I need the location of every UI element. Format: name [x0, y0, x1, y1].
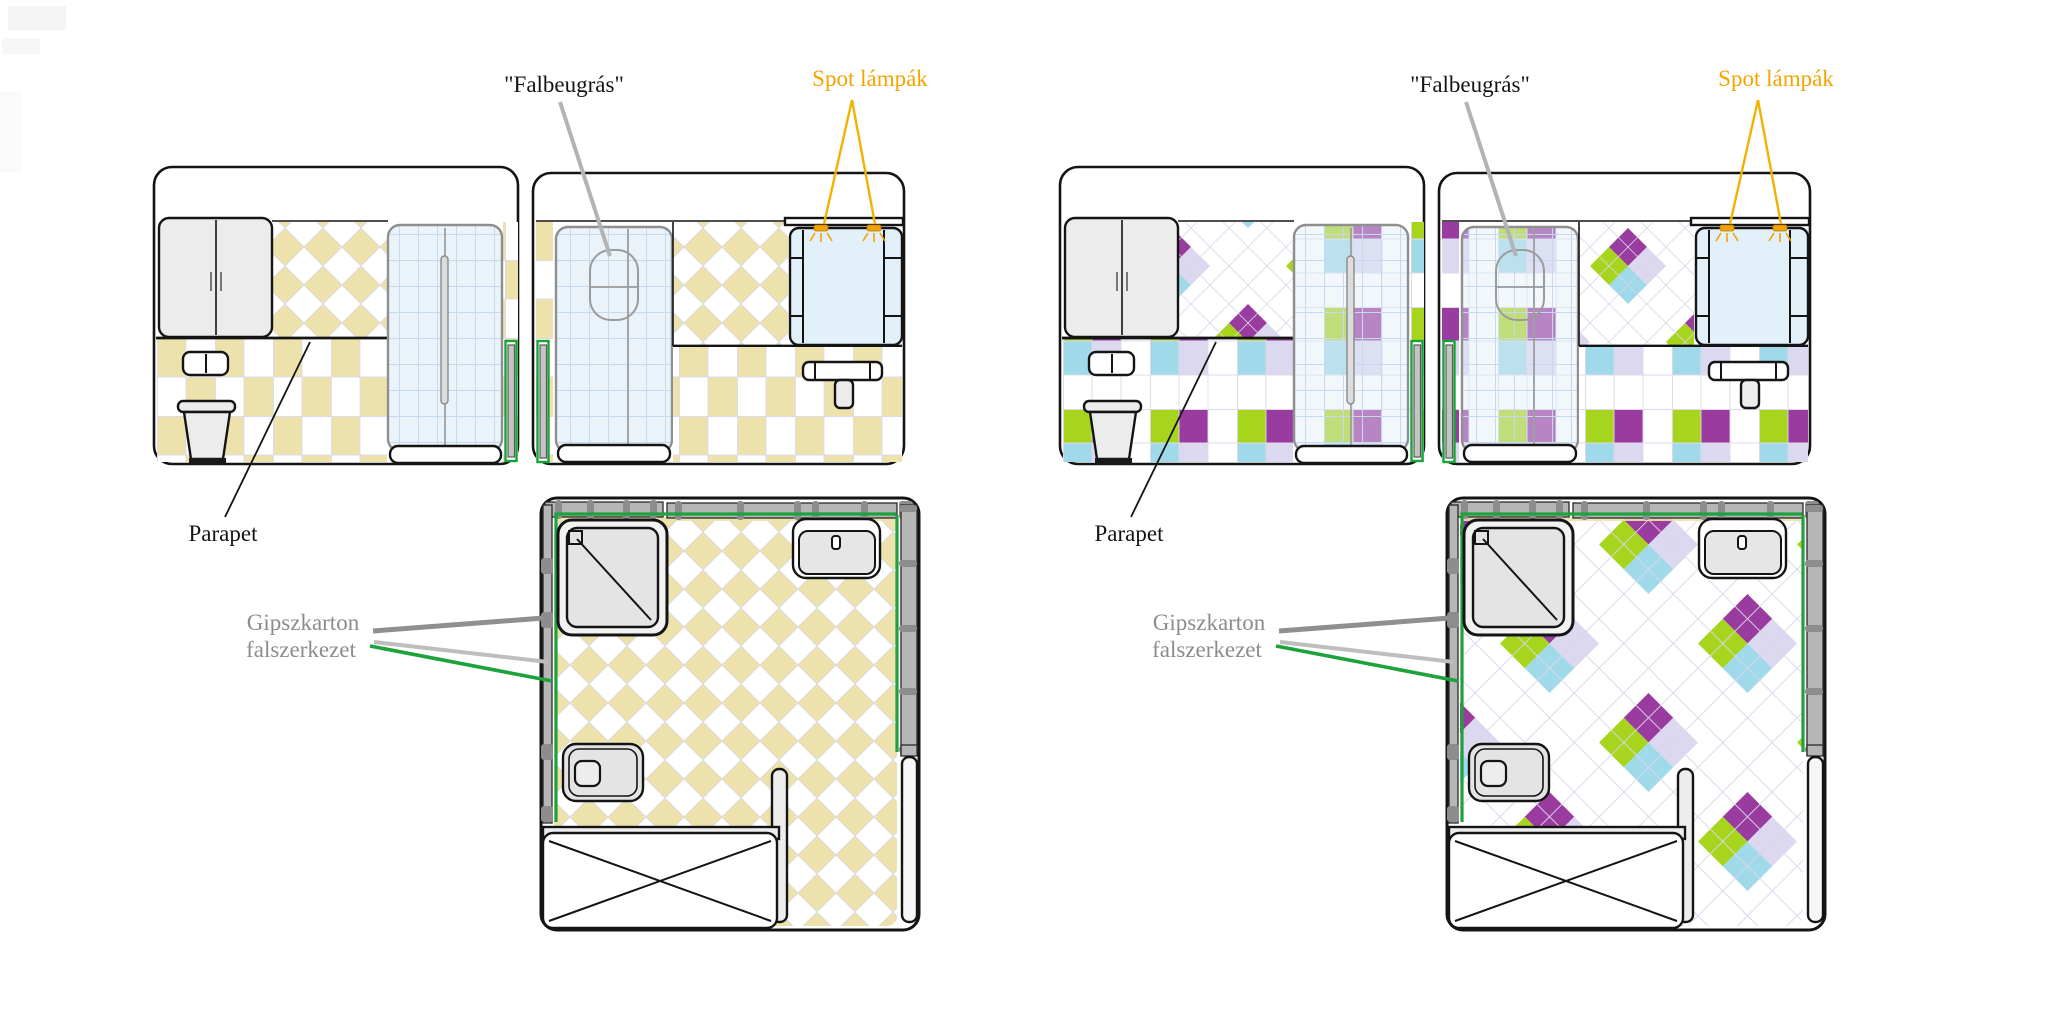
glass-door-edge-2 — [538, 341, 549, 462]
elevation-wall-1 — [1060, 167, 1424, 465]
shower-stall-2 — [1462, 227, 1578, 462]
glass-door-edge-1 — [506, 341, 517, 461]
upper-wall-tiles — [272, 222, 387, 339]
glass-door-edge-2 — [1444, 341, 1455, 462]
beige-scheme-group: "Falbeugrás" Spot lámpák Parapet Gipszka… — [154, 66, 928, 930]
toilet-paper-holder — [1089, 352, 1134, 375]
scan-artifacts — [0, 6, 66, 172]
tile-lattice-overlay — [1178, 222, 1293, 339]
faucet — [1738, 536, 1746, 549]
label-gipszkarton-2: falszerkezet — [1152, 637, 1262, 662]
shower-tray — [390, 446, 501, 463]
label-gipszkarton-1: Gipszkarton — [247, 610, 360, 635]
drywall-left — [541, 505, 553, 823]
elevation-wall-2 — [533, 173, 904, 464]
shower-tray — [1464, 445, 1576, 462]
drywall-right — [1805, 505, 1823, 755]
toilet-paper-holder — [183, 352, 228, 375]
bathroom-diagram: "Falbeugrás" Spot lámpák Parapet Gipszka… — [0, 0, 2048, 1024]
bathtub-plan — [1449, 833, 1683, 928]
mirror-shelf — [1691, 218, 1809, 225]
shower-door-handle — [441, 256, 448, 404]
drywall-top — [1451, 500, 1819, 520]
drywall-right — [899, 505, 917, 755]
color-scheme-group: "Falbeugrás" Spot lámpák Parapet Gipszka… — [1060, 66, 1834, 930]
label-spot-lampak: Spot lámpák — [1718, 66, 1834, 91]
wall-cabinet — [1065, 218, 1178, 337]
diagram-canvas: "Falbeugrás" Spot lámpák Parapet Gipszka… — [0, 0, 2048, 1024]
shower-plan — [558, 520, 667, 635]
bathtub-plan — [543, 833, 777, 928]
label-parapet: Parapet — [1095, 521, 1165, 546]
label-falbeugras: "Falbeugrás" — [1410, 72, 1530, 97]
shower-plan — [1464, 520, 1573, 635]
label-spot-lampak: Spot lámpák — [812, 66, 928, 91]
label-parapet: Parapet — [189, 521, 259, 546]
door-leaf — [1807, 745, 1823, 922]
shower-door-handle — [1347, 256, 1354, 404]
shower-stall-1 — [388, 225, 502, 463]
leader-gipszkarton-a — [1279, 618, 1450, 631]
door-leaf — [901, 745, 917, 922]
glass-door-edge-1 — [1412, 341, 1423, 461]
mirror-shelf — [785, 218, 903, 225]
drywall-left — [1447, 505, 1459, 823]
drywall-top — [545, 500, 913, 520]
elevation-wall-2 — [1439, 173, 1810, 464]
upper-wall-tiles — [673, 222, 788, 346]
label-gipszkarton-1: Gipszkarton — [1153, 610, 1266, 635]
elevation-wall-1 — [154, 167, 518, 465]
faucet — [832, 536, 840, 549]
shower-stall-2 — [556, 227, 672, 462]
sink-plan — [1699, 519, 1786, 578]
toilet-plan — [563, 744, 643, 801]
sink-plan — [793, 519, 880, 578]
label-gipszkarton-2: falszerkezet — [246, 637, 356, 662]
toilet-plan — [1469, 744, 1549, 801]
shower-tray — [558, 445, 670, 462]
mirror-cabinet — [790, 228, 902, 345]
wall-cabinet — [159, 218, 272, 337]
label-falbeugras: "Falbeugrás" — [504, 72, 624, 97]
floor-plan — [1447, 498, 1825, 930]
shower-stall-1 — [1294, 225, 1408, 463]
leader-gipszkarton-a — [373, 618, 544, 631]
floor-plan — [541, 498, 919, 930]
tile-lattice-overlay — [1579, 222, 1694, 346]
mirror-cabinet — [1696, 228, 1808, 345]
shower-tray — [1296, 446, 1407, 463]
